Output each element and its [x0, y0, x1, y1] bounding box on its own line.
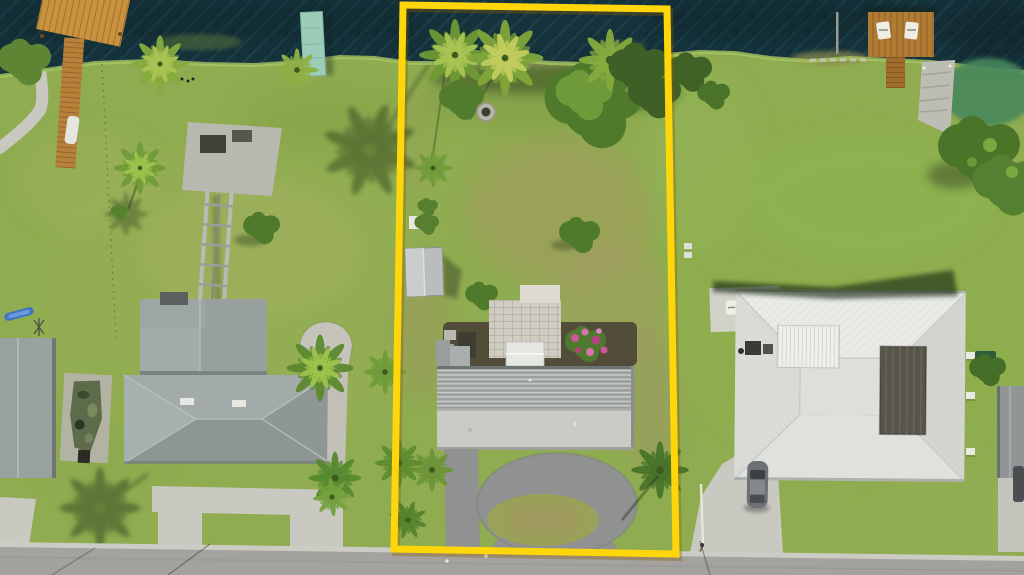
far-left-house — [0, 338, 56, 478]
left-house-upper-wing — [140, 292, 267, 375]
channel-pole — [836, 12, 839, 54]
algae-patch — [158, 34, 242, 50]
garage-ribbed-roof — [777, 325, 839, 368]
boat-on-pad — [60, 373, 113, 464]
white-shed — [506, 342, 544, 366]
dark-vehicle — [1013, 466, 1024, 502]
right-house-roof — [734, 289, 966, 482]
small-palm — [414, 149, 452, 187]
screened-courtyard — [880, 346, 927, 434]
loop-driveway — [444, 449, 637, 556]
white-utility-pair — [684, 243, 692, 249]
aerial-photo — [0, 0, 1024, 575]
